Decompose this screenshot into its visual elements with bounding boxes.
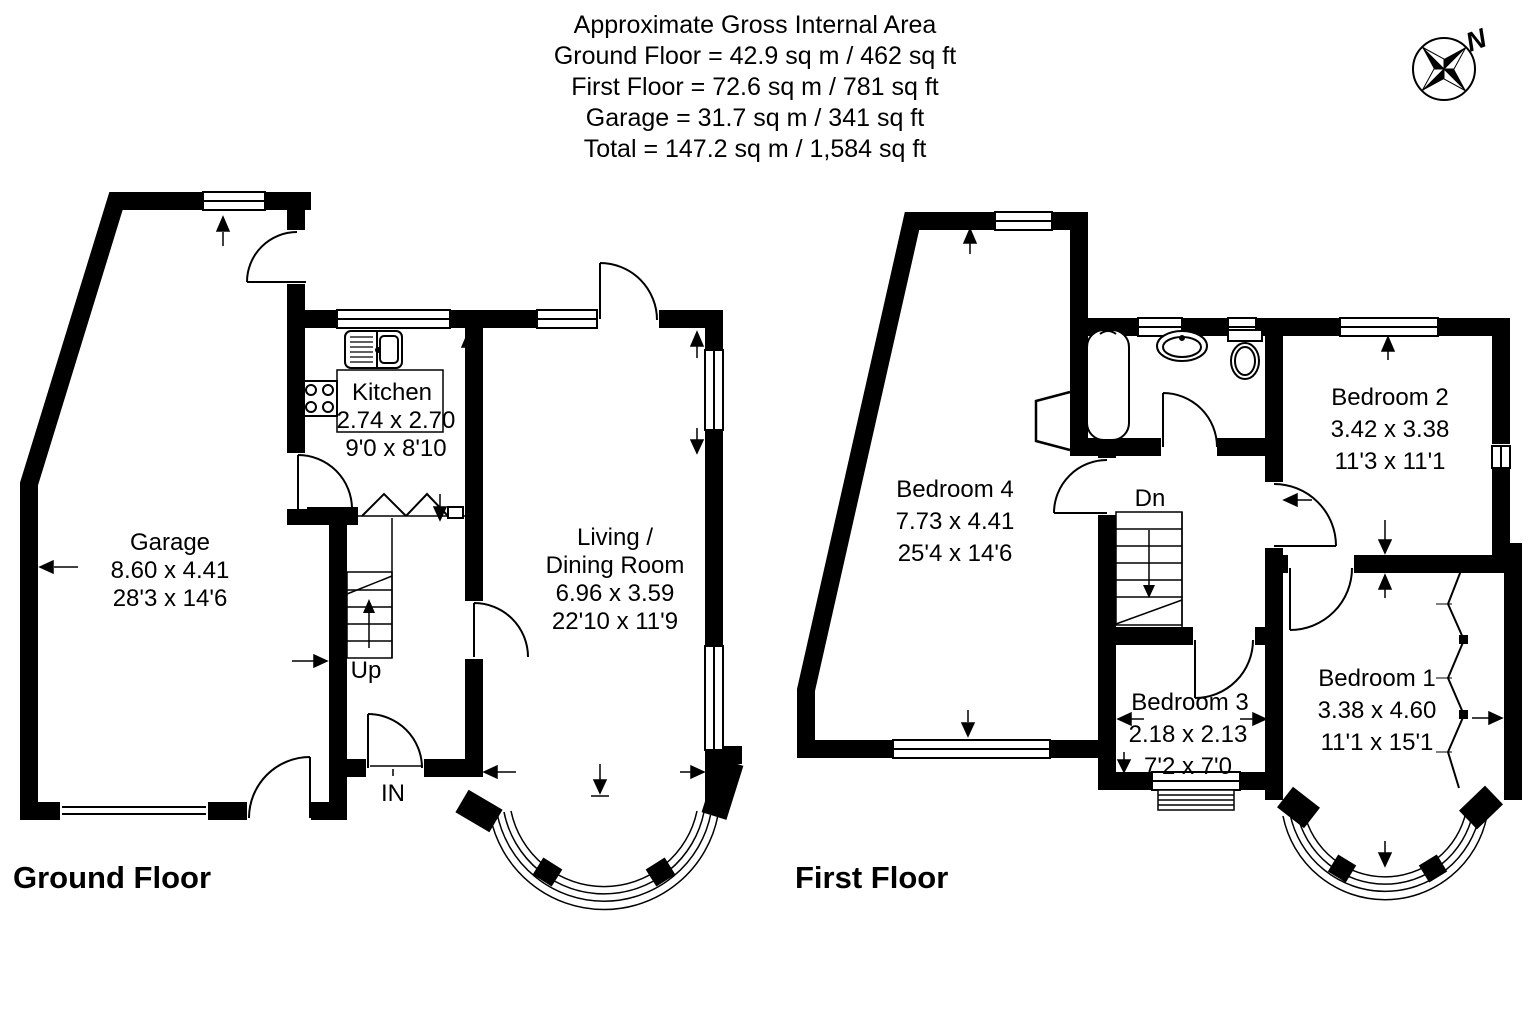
up-label: Up [351,657,382,684]
garage-name: Garage [130,529,210,556]
bedroom1-up-arrow [1379,575,1391,598]
north-label: N [1462,23,1491,58]
bedroom3-name: Bedroom 3 [1131,689,1248,716]
header-line-2: Ground Floor = 42.9 sq m / 462 sq ft [554,42,956,70]
dn-label: Dn [1135,485,1166,512]
bedroom3-down-arrow [1118,752,1130,772]
living-dim-ft: 22'10 x 11'9 [552,608,678,635]
bedroom3-dim-ft: 7'2 x 7'0 [1144,753,1232,780]
bathtub [1087,330,1129,440]
bedroom1-wardrobe-arrow [1472,712,1502,724]
living-arrow-left [484,766,516,778]
bedroom3-window-sill [1158,790,1234,810]
bedroom2-down-arrow [1379,520,1391,553]
header-line-4: Garage = 31.7 sq m / 341 sq ft [586,104,924,132]
living-window-arrow-down [691,428,703,453]
ground-floor-openings [60,190,659,822]
area-summary: Approximate Gross Internal Area Ground F… [554,11,956,163]
living-window-arrow-up [691,332,703,358]
ground-floor-walls [29,192,742,820]
garage-width-arrow-left [40,561,78,573]
bedroom4-window-arrow [964,229,976,254]
bedroom4-dim-m: 7.73 x 4.41 [896,508,1015,535]
ground-floor-plan: Garage 8.60 x 4.41 28'3 x 14'6 Kitchen 2… [13,190,742,910]
bedroom4-dim-ft: 25'4 x 14'6 [898,540,1013,567]
header-line-1: Approximate Gross Internal Area [574,11,937,39]
in-label: IN [381,780,405,807]
bathroom-fixtures [1087,330,1262,440]
header-line-5: Total = 147.2 sq m / 1,584 sq ft [584,135,927,163]
staircase-down [1116,512,1182,632]
bedroom1-dim-ft: 11'1 x 15'1 [1321,729,1434,756]
first-floor-title: First Floor [795,860,948,895]
bedroom4-name: Bedroom 4 [896,476,1013,503]
bedroom2-dim-ft: 11'3 x 11'1 [1334,448,1445,475]
ground-floor-title: Ground Floor [13,860,211,895]
staircase-up [347,518,392,658]
toilet-cistern [1228,330,1262,341]
door-jamb [448,507,463,518]
bedroom2-dim-m: 3.42 x 3.38 [1331,416,1450,443]
bedroom2-left-arrow [1284,494,1312,506]
kitchen-name: Kitchen [352,379,432,406]
bedroom3-dim-m: 2.18 x 2.13 [1129,721,1248,748]
living-arrow-right [680,766,704,778]
garage-dim-ft: 28'3 x 14'6 [113,585,228,612]
living-name-2: Dining Room [546,552,685,579]
kitchen-bifold-doors [362,494,448,516]
floorplan-canvas: Approximate Gross Internal Area Ground F… [0,0,1536,1024]
garage-window-arrow [217,217,229,246]
bedroom1-bay-window [1283,795,1494,900]
bedroom1-name: Bedroom 1 [1318,665,1435,692]
bedroom1-wardrobe [1436,568,1467,788]
living-name-1: Living / [577,524,653,551]
first-floor-plan: Bedroom 4 7.73 x 4.41 25'4 x 14'6 Bedroo… [795,210,1522,900]
bedroom1-bay-arrow [1379,841,1391,866]
floorplan-page: Approximate Gross Internal Area Ground F… [0,0,1536,1024]
bedroom1-dim-m: 3.38 x 4.60 [1318,697,1437,724]
chimney-breast [1036,392,1070,450]
bedroom4-bottom-arrow [962,710,974,736]
bedroom2-name: Bedroom 2 [1331,384,1448,411]
living-dim-m: 6.96 x 3.59 [556,580,675,607]
bedroom2-window-arrow [1382,337,1394,360]
kitchen-dim-ft: 9'0 x 8'10 [345,435,446,462]
compass-rose: N [1413,23,1491,100]
header-line-3: First Floor = 72.6 sq m / 781 sq ft [571,73,939,101]
bedroom1-door [1290,568,1352,630]
kitchen-dim-m: 2.74 x 2.70 [337,407,456,434]
garage-dim-m: 8.60 x 4.41 [111,557,230,584]
garage-width-arrow-right [292,655,327,667]
living-arrow-down [591,764,609,796]
